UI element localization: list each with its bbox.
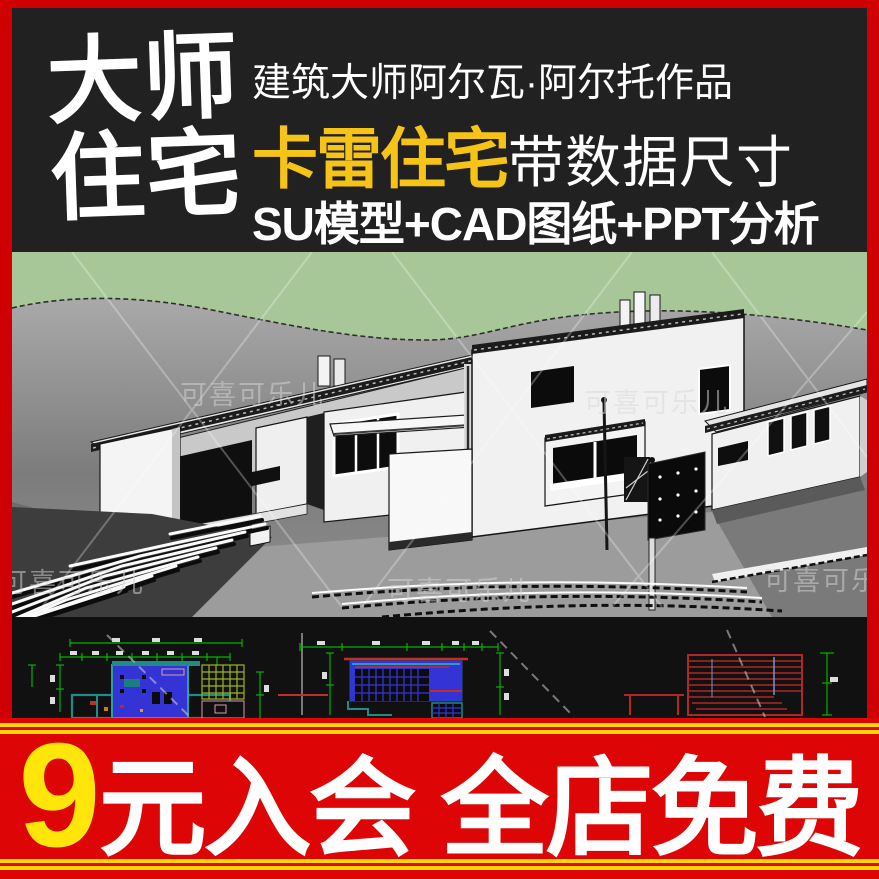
- svg-text:可喜可乐儿: 可喜可乐儿: [584, 388, 729, 418]
- poster-title: 大师 住宅: [39, 28, 251, 229]
- svg-text:可喜可乐儿: 可喜可乐儿: [180, 380, 325, 410]
- architect-subtitle: 建筑大师阿尔瓦·阿尔托作品: [252, 52, 733, 108]
- promo-price: 9: [18, 718, 98, 878]
- house-render-illustration: 可喜可乐儿 可喜可乐儿 可喜可乐儿 可喜可乐儿 可喜可乐儿: [12, 252, 867, 617]
- product-suffix: 带数据尺寸: [508, 131, 793, 194]
- cad-drawings: [12, 617, 867, 718]
- promo-banner: 9元入会 全店免费: [0, 718, 879, 879]
- poster-title-line2: 住宅: [42, 125, 250, 229]
- render-section: 可喜可乐儿 可喜可乐儿 可喜可乐儿 可喜可乐儿 可喜可乐儿: [12, 252, 867, 617]
- svg-text:可喜可乐儿: 可喜可乐儿: [764, 566, 867, 596]
- header-section: 大师 住宅 建筑大师阿尔瓦·阿尔托作品 卡雷住宅带数据尺寸 SU模型+CAD图纸…: [12, 8, 867, 252]
- promo-message: 元入会 全店免费: [99, 748, 861, 869]
- product-poster[interactable]: 大师 住宅 建筑大师阿尔瓦·阿尔托作品 卡雷住宅带数据尺寸 SU模型+CAD图纸…: [0, 0, 879, 879]
- cad-section: [12, 617, 867, 718]
- promo-text: 9元入会 全店免费: [0, 722, 879, 879]
- svg-text:可喜可乐儿: 可喜可乐儿: [12, 568, 145, 598]
- package-features: SU模型+CAD图纸+PPT分析: [252, 188, 819, 254]
- svg-text:可喜可乐儿: 可喜可乐儿: [387, 576, 532, 606]
- poster-title-line1: 大师: [39, 28, 247, 132]
- product-name: 卡雷住宅: [252, 122, 508, 196]
